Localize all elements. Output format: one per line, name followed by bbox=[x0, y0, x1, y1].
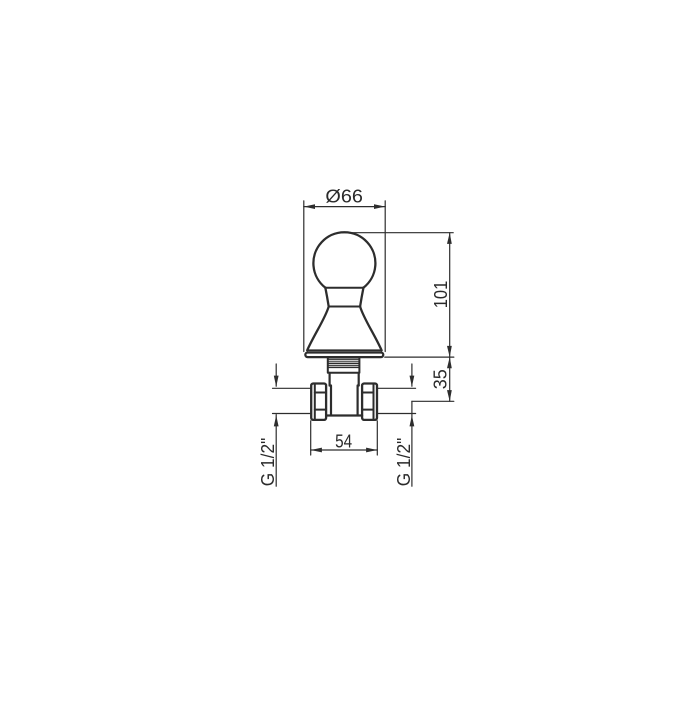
svg-text:35: 35 bbox=[430, 369, 450, 389]
svg-text:G 1/2": G 1/2" bbox=[394, 438, 414, 487]
svg-text:G 1/2": G 1/2" bbox=[258, 438, 278, 487]
svg-text:54: 54 bbox=[335, 432, 352, 452]
svg-text:101: 101 bbox=[431, 281, 451, 309]
svg-text:Ø66: Ø66 bbox=[325, 187, 363, 207]
